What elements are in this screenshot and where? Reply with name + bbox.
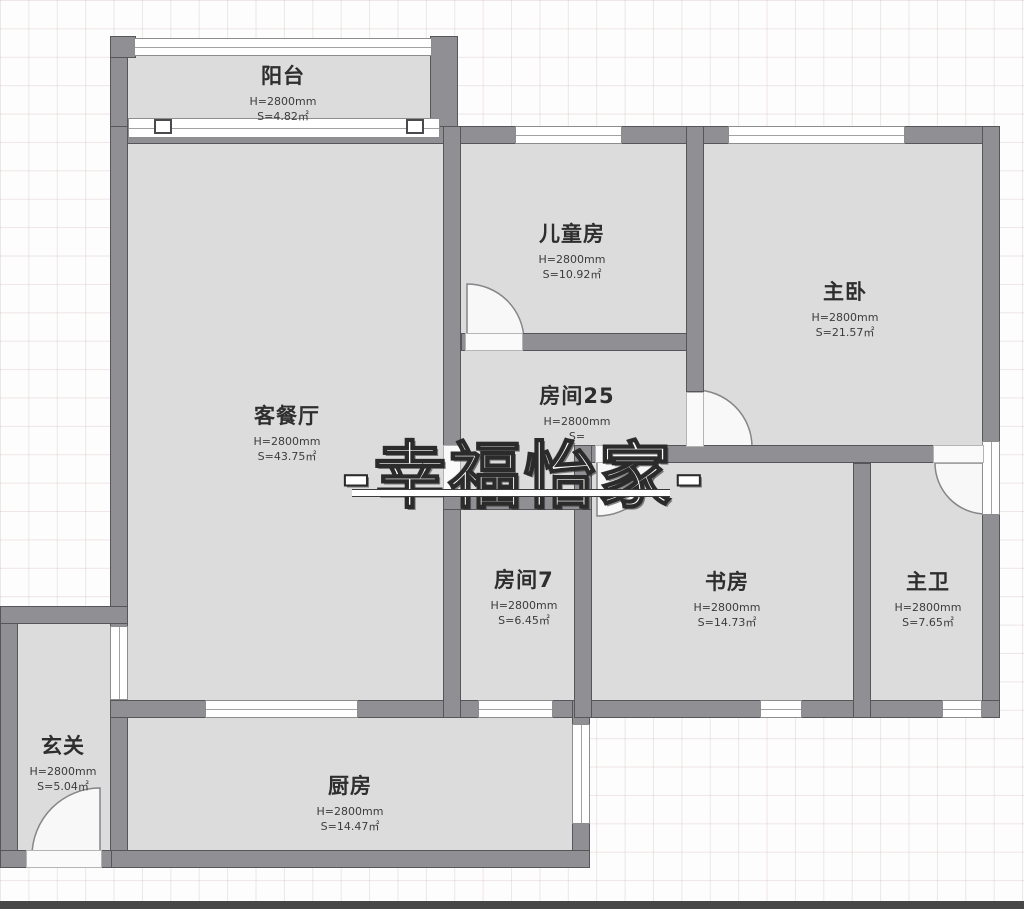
- right-outer-wall: [982, 126, 1000, 718]
- room-name: 玄关: [30, 730, 97, 760]
- kids-room-window: [515, 126, 622, 144]
- room-label-entry: 玄关 H=2800mm S=5.04㎡: [30, 730, 97, 794]
- kitchen-bottom-wall: [110, 850, 590, 868]
- room-height: H=2800mm: [694, 600, 761, 615]
- room-height: H=2800mm: [254, 434, 321, 449]
- room-height: H=2800mm: [30, 764, 97, 779]
- room-area: S=14.47㎡: [317, 819, 384, 834]
- room-area: S=6.45㎡: [491, 613, 558, 628]
- room-label-room7: 房间7 H=2800mm S=6.45㎡: [491, 564, 558, 628]
- room-label-master-bedroom: 主卧 H=2800mm S=21.57㎡: [812, 276, 879, 340]
- watermark-text: -幸福怡家-: [341, 417, 707, 522]
- room7-bottom-window: [478, 700, 553, 718]
- study-bath-divider-wall: [853, 463, 871, 718]
- room-name: 主卧: [812, 276, 879, 306]
- room-height: H=2800mm: [539, 252, 606, 267]
- entry-top-wall: [0, 606, 128, 624]
- room-area: S=43.75㎡: [254, 449, 321, 464]
- entry-left-wall: [0, 606, 18, 868]
- floor-plan: 阳台 H=2800mm S=4.82㎡ 客餐厅 H=2800mm S=43.75…: [0, 0, 1024, 909]
- watermark-underline: [352, 489, 670, 497]
- room-height: H=2800mm: [250, 94, 317, 109]
- entry-door-opening: [26, 850, 102, 868]
- room-label-living-dining: 客餐厅 H=2800mm S=43.75㎡: [254, 400, 321, 464]
- room-area: S=4.82㎡: [250, 109, 317, 124]
- room-area: S=5.04㎡: [30, 779, 97, 794]
- room-label-study: 书房 H=2800mm S=14.73㎡: [694, 566, 761, 630]
- window-frame-mark-left: [154, 119, 172, 134]
- room-name: 儿童房: [539, 218, 606, 248]
- kitchen-window: [572, 724, 590, 824]
- room-name: 客餐厅: [254, 400, 321, 430]
- room-label-kids-room: 儿童房 H=2800mm S=10.92㎡: [539, 218, 606, 282]
- room-area: S=14.73㎡: [694, 615, 761, 630]
- room-label-kitchen: 厨房 H=2800mm S=14.47㎡: [317, 770, 384, 834]
- kids-room-door-leaf: [465, 333, 523, 351]
- bedroom-divider-wall: [686, 126, 704, 392]
- left-outer-wall: [110, 126, 128, 868]
- master-bath-window: [982, 441, 1000, 515]
- room-label-balcony: 阳台 H=2800mm S=4.82㎡: [250, 60, 317, 124]
- room-height: H=2800mm: [317, 804, 384, 819]
- balcony-railing-window: [134, 38, 432, 56]
- window-frame-mark-right: [406, 119, 424, 134]
- room-name: 主卫: [895, 566, 962, 596]
- room-name: 房间25: [539, 380, 614, 410]
- room-height: H=2800mm: [812, 310, 879, 325]
- room-label-master-bath: 主卫 H=2800mm S=7.65㎡: [895, 566, 962, 630]
- photo-bottom-edge: [0, 901, 1024, 909]
- master-bath-door-leaf: [933, 445, 984, 463]
- entry-living-opening: [110, 626, 128, 700]
- room-area: S=7.65㎡: [895, 615, 962, 630]
- master-bedroom-window: [728, 126, 905, 144]
- room-name: 书房: [694, 566, 761, 596]
- room-area: S=21.57㎡: [812, 325, 879, 340]
- room-name: 房间7: [491, 564, 558, 594]
- kitchen-passage-opening: [205, 700, 358, 718]
- bath-bottom-window: [942, 700, 982, 718]
- room-name: 厨房: [317, 770, 384, 800]
- room-height: H=2800mm: [491, 598, 558, 613]
- room-height: H=2800mm: [895, 600, 962, 615]
- room-name: 阳台: [250, 60, 317, 90]
- room-area: S=10.92㎡: [539, 267, 606, 282]
- balcony-top-cap-left: [110, 36, 136, 58]
- study-bottom-window: [760, 700, 802, 718]
